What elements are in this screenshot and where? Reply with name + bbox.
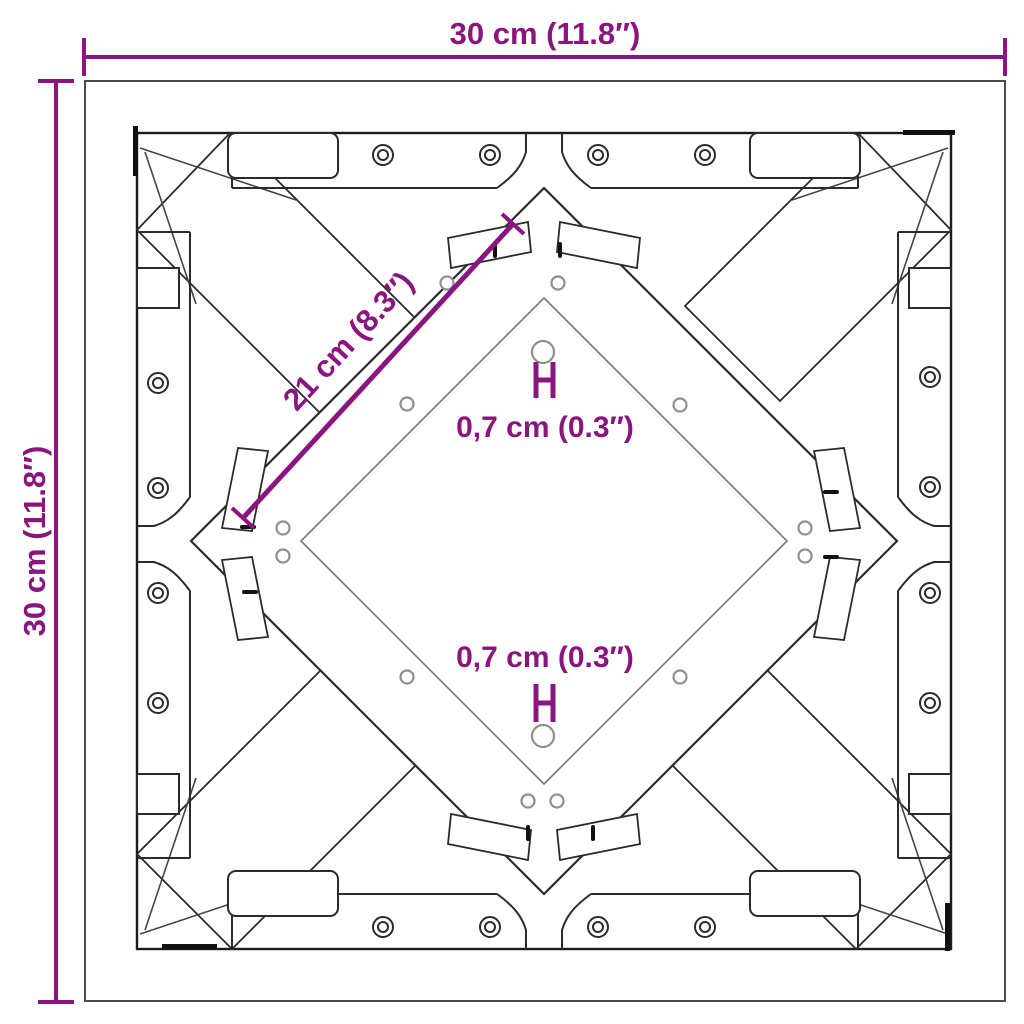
foot-top-right: [903, 130, 955, 135]
dimensioned-hole-bottom: [532, 725, 554, 747]
pilot-hole: [552, 277, 565, 290]
dimension-width: 30 cm (11.8″): [82, 16, 1007, 76]
dimensioned-hole-top: [532, 341, 554, 363]
dimension-label-hole-bottom: 0,7 cm (0.3″): [456, 641, 634, 674]
dimension-height: 30 cm (11.8″): [17, 79, 74, 1004]
pilot-hole: [522, 795, 535, 808]
slot-right-a: [823, 490, 839, 494]
tab-bottom-right: [750, 871, 860, 916]
foot-top-left: [133, 126, 138, 176]
brace-hole: [401, 671, 414, 684]
pilot-hole: [277, 522, 290, 535]
tab-top-left: [228, 133, 338, 178]
tab-top-right: [750, 133, 860, 178]
slot-bottom-b: [591, 825, 595, 841]
product-dimension-diagram: 30 cm (11.8″) 30 cm (11.8″) 21 cm (8.3″)…: [0, 0, 1024, 1024]
foot-bottom-left: [162, 944, 217, 949]
foot-bottom-right: [945, 903, 950, 951]
pilot-hole: [277, 550, 290, 563]
tab-right-upper: [909, 268, 951, 308]
slot-right-b: [823, 555, 839, 559]
tab-left-lower: [137, 774, 179, 814]
pilot-hole: [799, 522, 812, 535]
tab-bottom-left: [228, 871, 338, 916]
slot-left-b: [242, 590, 258, 594]
brace-hole: [401, 398, 414, 411]
tab-left-upper: [137, 268, 179, 308]
slot-top-b: [558, 242, 562, 258]
dimension-label-width: 30 cm (11.8″): [450, 16, 641, 51]
brace-hole: [674, 399, 687, 412]
slot-bottom-a: [526, 825, 530, 841]
tab-right-lower: [909, 774, 951, 814]
pilot-hole: [799, 550, 812, 563]
brace-hole: [674, 671, 687, 684]
pilot-hole: [551, 795, 564, 808]
dimension-label-height: 30 cm (11.8″): [17, 446, 52, 637]
technical-drawing: 30 cm (11.8″) 30 cm (11.8″) 21 cm (8.3″)…: [0, 0, 1024, 1024]
dimension-label-hole-top: 0,7 cm (0.3″): [456, 411, 634, 444]
